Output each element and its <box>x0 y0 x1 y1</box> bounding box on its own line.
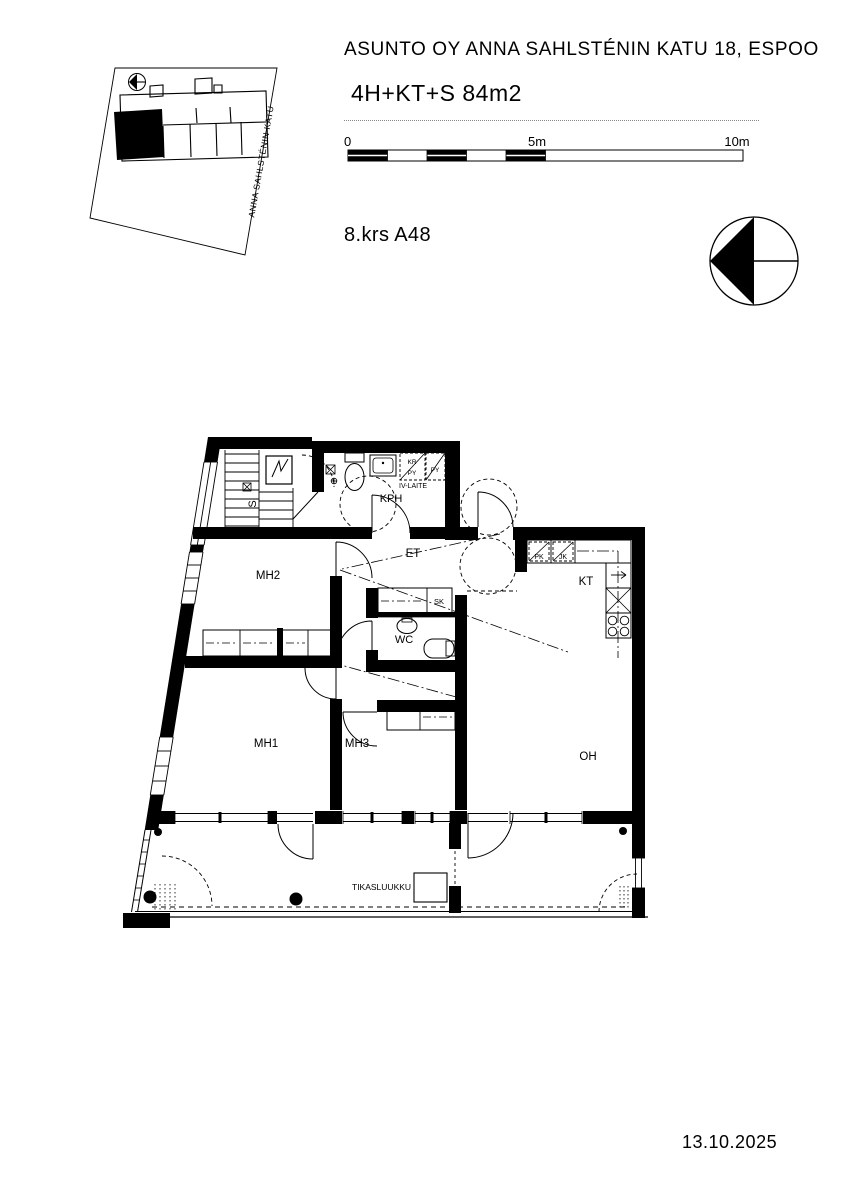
floorplan-page: ASUNTO OY ANNA SAHLSTÉNIN KATU 18, ESPOO… <box>0 0 849 1200</box>
label-bathroom: KPH <box>380 493 403 505</box>
bathroom-fixtures <box>326 453 445 491</box>
scale-zero-label: 0 <box>344 134 351 149</box>
label-living-room: OH <box>579 751 596 763</box>
north-compass-icon <box>710 217 798 305</box>
label-washer2: PY <box>431 467 440 474</box>
floor-plan: S KPH ET WC SK KT MH2 MH1 MH3 OH KR PY P… <box>123 437 648 928</box>
right-wall-window <box>632 858 645 888</box>
label-fridge: JK <box>559 554 568 561</box>
kitchen-fixtures <box>467 540 631 638</box>
label-bedroom1: MH1 <box>254 738 278 750</box>
scale-ten-label: 10m <box>724 134 749 149</box>
balcony <box>132 827 649 917</box>
label-sauna: S <box>247 500 259 507</box>
scale-bar: 0 5m 10m <box>344 134 750 161</box>
label-ladder-hatch: TIKASLUUKKU <box>352 882 411 892</box>
label-bedroom3: MH3 <box>345 738 369 750</box>
label-kitchen: KT <box>579 576 594 588</box>
doors <box>278 492 513 859</box>
sauna-benches <box>225 450 293 529</box>
stove-icon <box>608 616 629 636</box>
site-highlighted-unit <box>114 109 164 160</box>
label-dryer: KR <box>407 459 416 466</box>
label-wc: WC <box>395 634 413 646</box>
wc-fixtures <box>378 617 455 658</box>
site-plan: ANNA SAHLSTÉNIN KATU <box>90 68 277 255</box>
label-hall: ET <box>406 548 421 560</box>
wardrobes <box>203 630 455 730</box>
scale-five-label: 5m <box>528 134 546 149</box>
drawing-canvas: 0 5m 10m <box>0 0 849 1200</box>
site-north-icon <box>129 74 146 91</box>
label-washer1: PY <box>408 470 417 477</box>
walls <box>123 437 645 928</box>
south-windows <box>175 811 582 824</box>
ladder-hatch-box <box>414 873 447 902</box>
label-closet: SK <box>434 597 444 606</box>
balcony-columns <box>144 827 628 906</box>
sauna-stove-icon <box>266 456 292 484</box>
label-iv-unit: IV-LAITE <box>399 483 427 490</box>
label-freezer: PK <box>534 554 544 561</box>
label-bedroom2: MH2 <box>256 570 280 582</box>
